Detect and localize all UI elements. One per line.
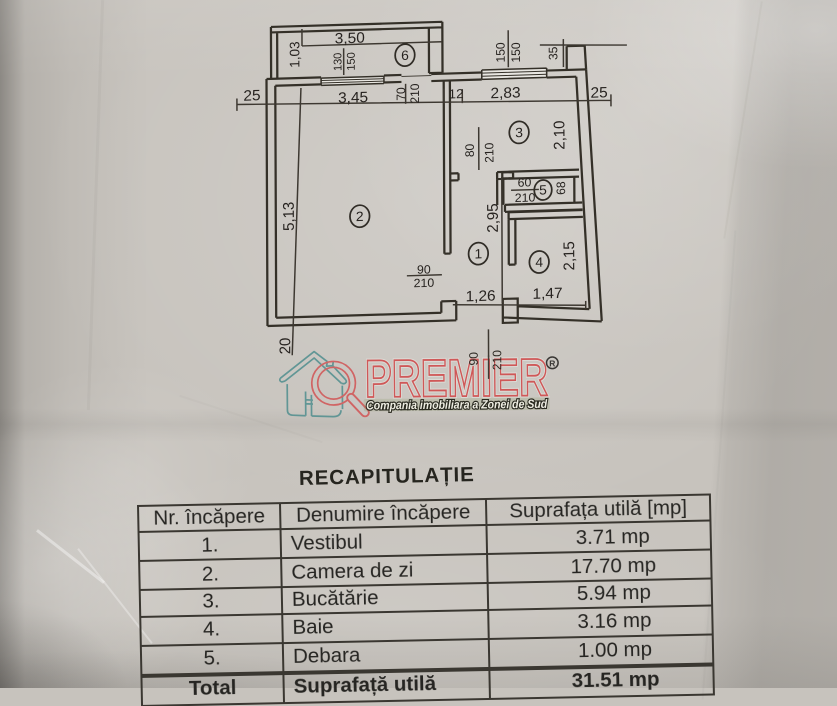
- svg-text:5: 5: [539, 183, 547, 198]
- svg-text:60: 60: [518, 176, 532, 190]
- svg-text:210: 210: [408, 83, 422, 104]
- svg-text:90: 90: [417, 263, 431, 277]
- svg-text:R: R: [549, 358, 555, 368]
- svg-text:150: 150: [346, 52, 358, 71]
- svg-text:35: 35: [546, 46, 560, 60]
- svg-text:210: 210: [490, 350, 504, 371]
- svg-text:150: 150: [509, 42, 523, 63]
- svg-text:3: 3: [515, 125, 523, 140]
- svg-text:1,26: 1,26: [466, 288, 496, 306]
- svg-text:3,45: 3,45: [338, 89, 368, 107]
- svg-text:90: 90: [467, 352, 481, 366]
- svg-text:12: 12: [449, 86, 464, 101]
- svg-text:1,03: 1,03: [287, 41, 302, 68]
- svg-text:2,95: 2,95: [485, 203, 502, 233]
- svg-text:150: 150: [493, 42, 507, 63]
- svg-text:2: 2: [356, 209, 364, 224]
- svg-text:20: 20: [277, 337, 294, 354]
- svg-text:5,13: 5,13: [281, 201, 298, 231]
- svg-text:1,47: 1,47: [532, 285, 562, 303]
- svg-text:210: 210: [414, 276, 435, 290]
- svg-text:68: 68: [554, 181, 568, 195]
- svg-text:80: 80: [463, 143, 477, 157]
- svg-text:70: 70: [394, 87, 408, 101]
- svg-text:210: 210: [515, 191, 536, 205]
- svg-text:2,83: 2,83: [490, 85, 520, 103]
- svg-text:2,15: 2,15: [561, 241, 578, 271]
- svg-text:25: 25: [590, 84, 607, 101]
- svg-text:1: 1: [474, 247, 482, 262]
- svg-text:3,50: 3,50: [335, 30, 365, 48]
- svg-text:6: 6: [401, 48, 409, 63]
- svg-text:Compania imobiliara a Zonei de: Compania imobiliara a Zonei de Sud: [366, 397, 548, 413]
- svg-text:25: 25: [243, 87, 260, 104]
- svg-text:130: 130: [332, 52, 344, 71]
- svg-text:4: 4: [535, 255, 543, 270]
- svg-text:2,10: 2,10: [551, 120, 568, 150]
- svg-text:210: 210: [482, 142, 496, 163]
